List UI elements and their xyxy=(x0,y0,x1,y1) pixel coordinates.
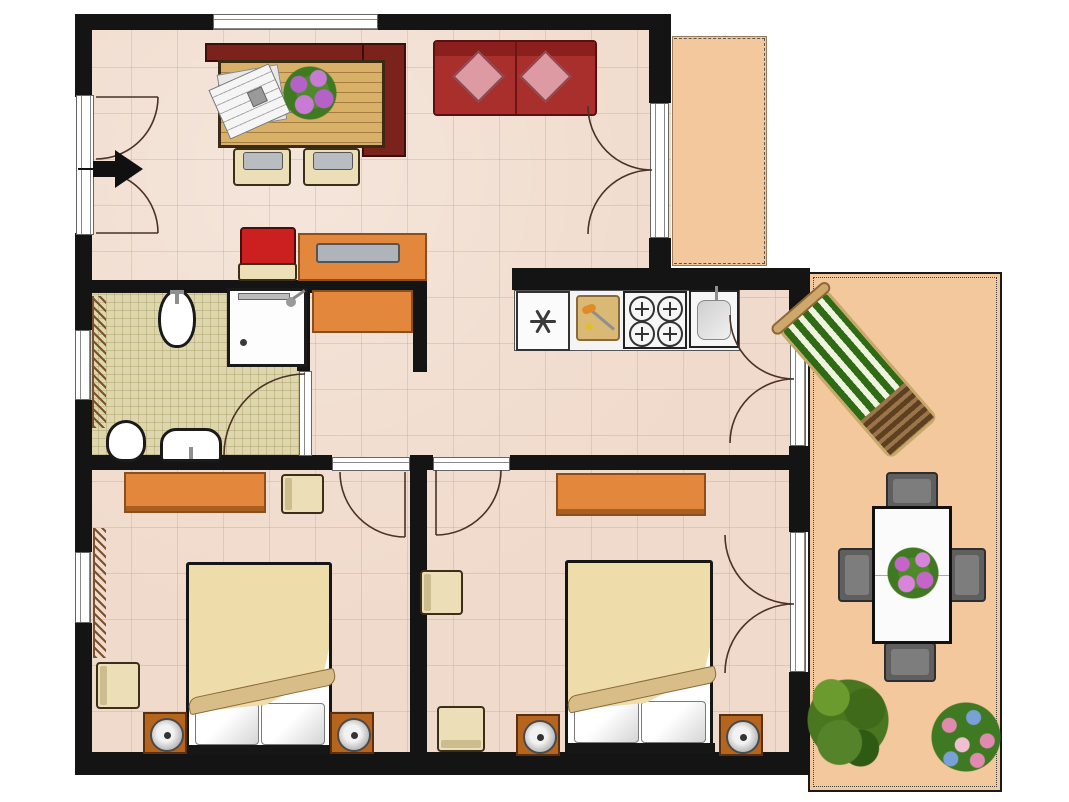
entrance-arrow-icon xyxy=(93,150,143,188)
bathroom-door-arc xyxy=(224,374,305,455)
bedroom2-terrace-door-arcs xyxy=(725,535,794,673)
apartment-floor-plan xyxy=(0,0,1069,802)
bedroom1-door-arc xyxy=(340,472,405,537)
balcony-door-arcs xyxy=(588,106,652,234)
kitchen-door-arcs xyxy=(730,315,794,443)
bedroom2-door-arc xyxy=(436,470,501,535)
door-swing-arcs xyxy=(0,0,1069,802)
